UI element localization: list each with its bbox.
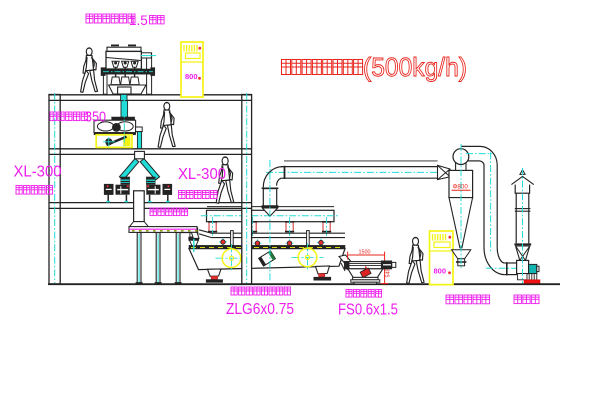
svg-text:(500kg/h): (500kg/h) xyxy=(363,52,467,82)
svg-text:800: 800 xyxy=(185,72,198,81)
svg-text:FS0.6x1.5: FS0.6x1.5 xyxy=(338,302,398,319)
svg-text:800: 800 xyxy=(434,267,447,276)
svg-text:ZLG6x0.75: ZLG6x0.75 xyxy=(226,301,294,318)
svg-text:1.5: 1.5 xyxy=(129,13,148,28)
svg-text:548: 548 xyxy=(386,269,392,278)
svg-text:XL-300: XL-300 xyxy=(178,166,226,183)
svg-text:350: 350 xyxy=(85,109,106,126)
svg-text:XL-300: XL-300 xyxy=(14,164,62,181)
svg-text:Φ800: Φ800 xyxy=(453,184,469,191)
svg-text:1500: 1500 xyxy=(359,249,371,255)
